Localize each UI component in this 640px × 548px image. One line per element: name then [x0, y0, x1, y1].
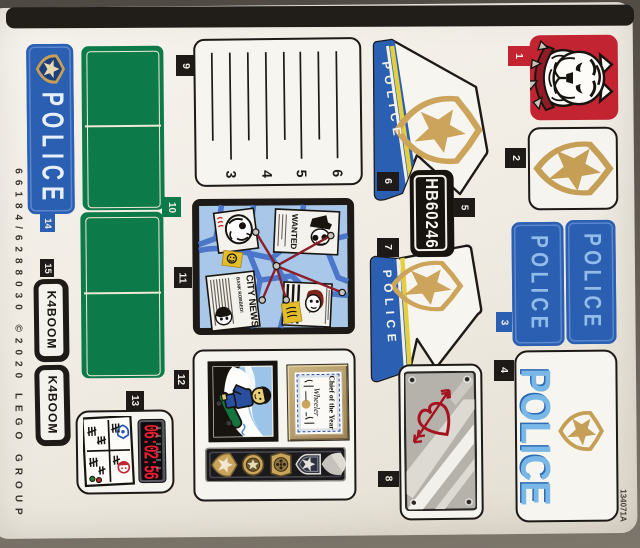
svg-text:4: 4	[259, 170, 275, 178]
svg-text:5: 5	[294, 170, 310, 178]
svg-text:3: 3	[223, 170, 239, 178]
svg-text:WANTED: WANTED	[289, 214, 300, 250]
svg-text:6: 6	[330, 169, 346, 177]
